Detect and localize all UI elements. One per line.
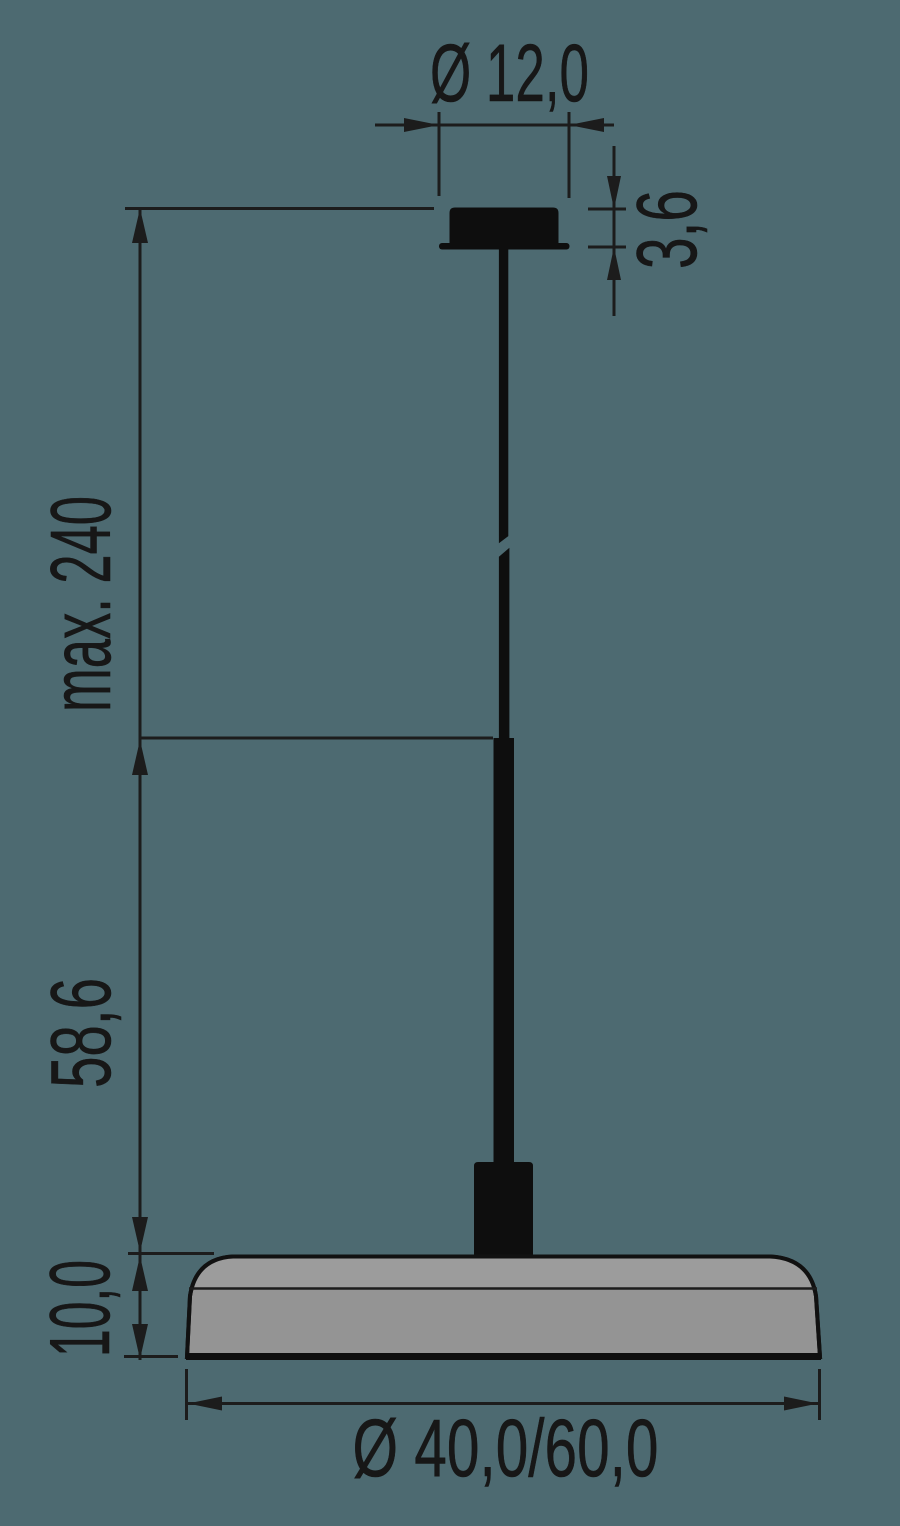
svg-text:3,6: 3,6 <box>620 190 715 269</box>
svg-text:Ø 12,0: Ø 12,0 <box>430 28 589 119</box>
svg-text:max. 240: max. 240 <box>34 496 129 712</box>
svg-text:10,0: 10,0 <box>33 1260 128 1357</box>
svg-text:58,6: 58,6 <box>34 978 129 1088</box>
svg-text:Ø 40,0/60,0: Ø 40,0/60,0 <box>353 1403 659 1494</box>
